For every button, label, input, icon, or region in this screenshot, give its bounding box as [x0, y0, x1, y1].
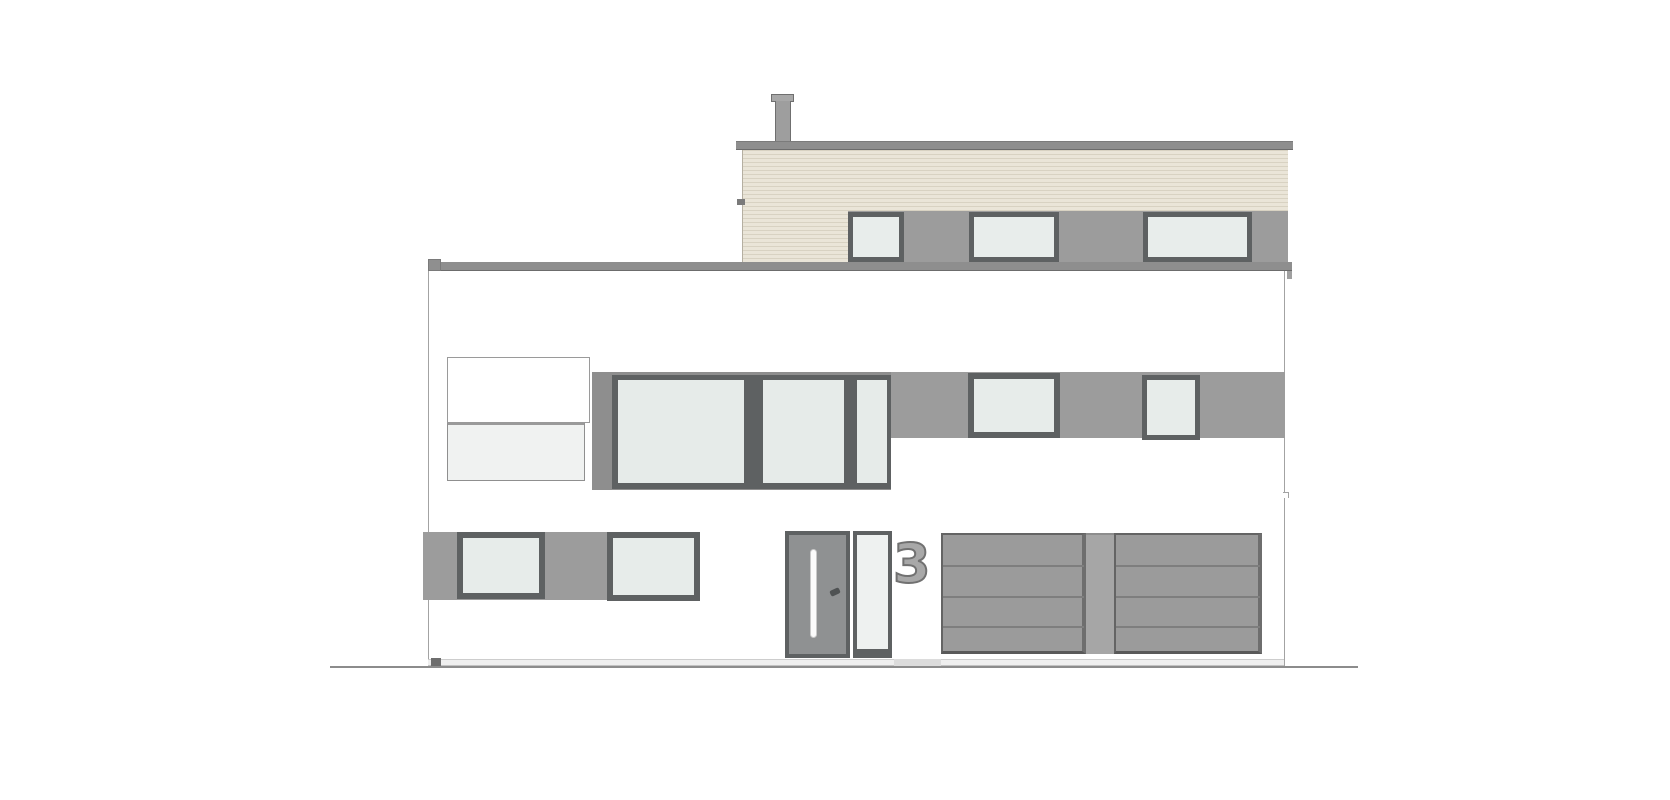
right-wall-step [1283, 492, 1289, 498]
balcony-box [447, 357, 590, 423]
garage-door-left [941, 533, 1086, 654]
balcony-glass-balustrade [447, 422, 585, 481]
right-wall-line [1284, 271, 1285, 667]
mid-window-glass-center [763, 380, 844, 483]
mid-window-small [1142, 375, 1200, 440]
mid-window-medium [968, 373, 1060, 438]
attic-roof-band [736, 141, 1293, 150]
garage-left-seam-3 [943, 626, 1084, 628]
mid-window-band-right [891, 372, 1285, 438]
door-sidelight [853, 531, 892, 658]
mid-window-glass-narrow [857, 380, 887, 483]
plinth-strip [428, 659, 1284, 666]
door-handle-bar [810, 549, 817, 638]
attic-window-1 [848, 212, 904, 262]
left-wall-line [428, 262, 429, 660]
garage-right-seam-3 [1116, 626, 1260, 628]
doormat-step [894, 659, 941, 666]
entry-door [785, 531, 850, 658]
ground-floor-window-1 [457, 532, 545, 599]
garage-right-seam-2 [1116, 596, 1260, 598]
elevation-drawing: 3 [0, 0, 1670, 800]
attic-window-3 [1143, 212, 1252, 262]
ground-floor-window-2 [607, 532, 700, 601]
garage-pillar [1086, 533, 1114, 654]
chimney-body [775, 101, 791, 142]
lower-roof-parapet-band [428, 262, 1292, 271]
house-number: 3 [893, 538, 935, 592]
garage-door-right [1114, 533, 1262, 654]
mid-window-glass-large [618, 380, 744, 483]
siding-edge-tick [737, 199, 745, 205]
garage-right-seam-1 [1116, 565, 1260, 567]
garage-left-seam-2 [943, 596, 1084, 598]
parapet-right-tail [1287, 271, 1292, 279]
garage-left-seam-1 [943, 565, 1084, 567]
parapet-left-notch [428, 259, 441, 271]
ground-line [330, 666, 1358, 668]
attic-window-2 [969, 212, 1059, 262]
